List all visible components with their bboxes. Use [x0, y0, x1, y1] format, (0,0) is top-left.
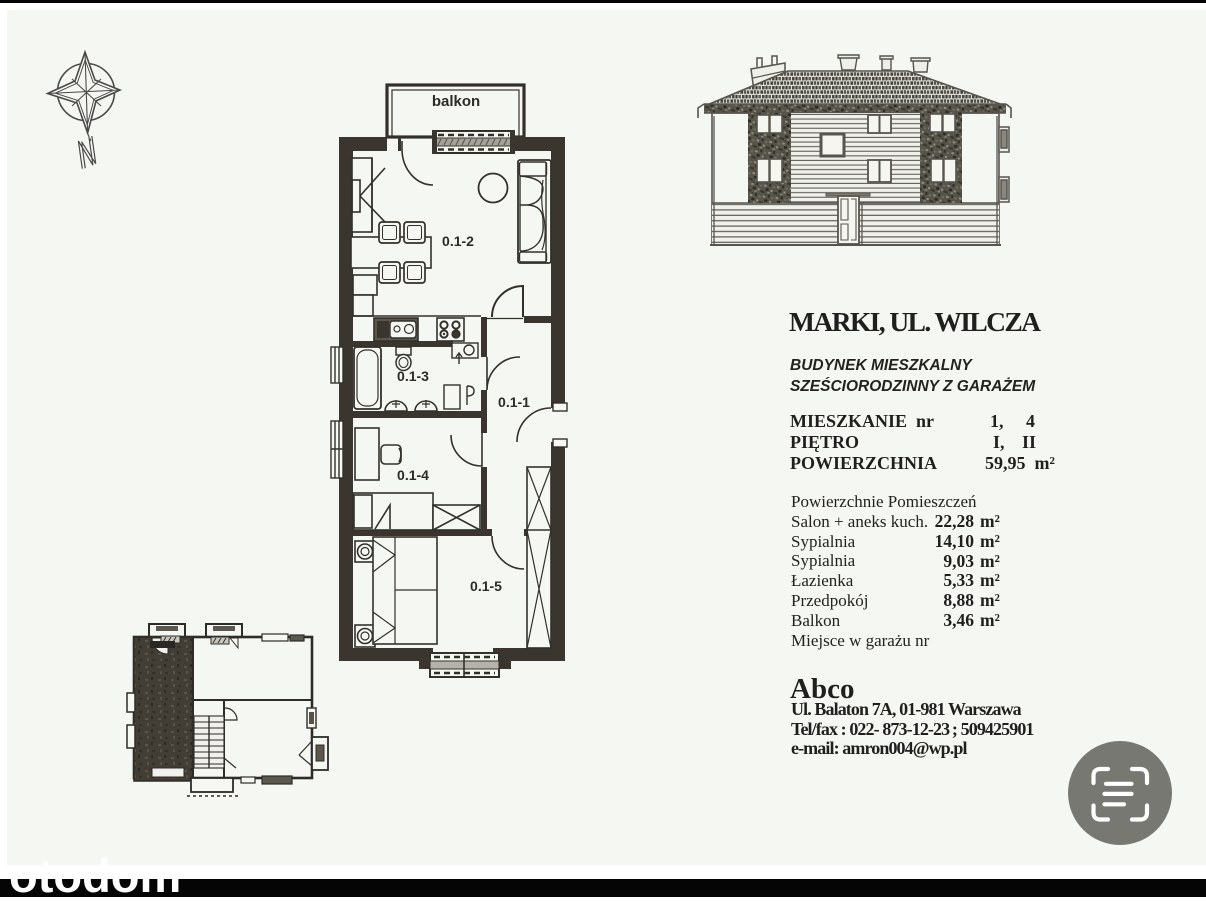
svg-text:0.1-1: 0.1-1: [498, 394, 530, 410]
svg-text:0.1-4: 0.1-4: [397, 467, 429, 483]
svg-text:0.1-5: 0.1-5: [470, 578, 502, 594]
svg-text:balkon: balkon: [432, 93, 480, 110]
svg-text:0.1-2: 0.1-2: [442, 233, 474, 249]
svg-text:0.1-3: 0.1-3: [397, 368, 429, 384]
